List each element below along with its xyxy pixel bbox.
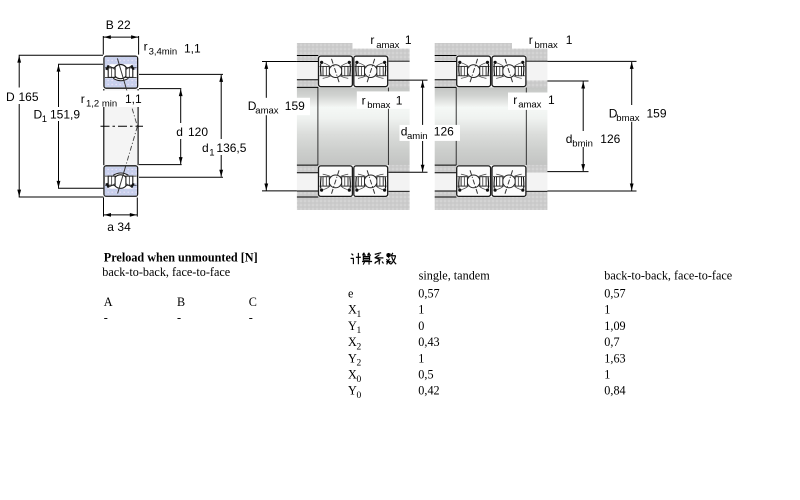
svg-text:A: A <box>104 295 113 309</box>
svg-text:r: r <box>513 93 517 107</box>
svg-text:1: 1 <box>396 93 403 107</box>
svg-text:1,1: 1,1 <box>125 92 142 106</box>
svg-text:e: e <box>348 287 353 301</box>
svg-text:amin: amin <box>407 131 428 142</box>
svg-text:B: B <box>177 295 185 309</box>
svg-text:126: 126 <box>434 124 454 138</box>
svg-text:r: r <box>81 92 85 106</box>
svg-text:3,4min: 3,4min <box>149 47 178 58</box>
svg-text:r: r <box>144 40 148 54</box>
svg-text:1: 1 <box>209 147 214 158</box>
svg-text:r: r <box>362 93 366 107</box>
svg-text:0,42: 0,42 <box>418 384 439 398</box>
svg-text:d: d <box>176 125 183 139</box>
svg-text:-: - <box>249 310 253 324</box>
svg-text:1,09: 1,09 <box>604 319 625 333</box>
svg-text:back-to-back, face-to-face: back-to-back, face-to-face <box>102 265 230 279</box>
svg-text:1: 1 <box>357 310 362 320</box>
svg-text:1,63: 1,63 <box>604 351 625 365</box>
svg-text:bmax: bmax <box>616 113 639 124</box>
svg-text:single, tandem: single, tandem <box>419 269 491 283</box>
svg-text:2: 2 <box>357 342 362 352</box>
svg-text:D: D <box>6 90 15 104</box>
svg-text:136,5: 136,5 <box>216 141 246 155</box>
svg-text:1: 1 <box>418 303 424 317</box>
svg-text:1: 1 <box>418 351 424 365</box>
svg-text:bmax: bmax <box>367 100 390 111</box>
svg-text:0,57: 0,57 <box>418 287 439 301</box>
svg-text:0,43: 0,43 <box>418 335 439 349</box>
svg-text:back-to-back, face-to-face: back-to-back, face-to-face <box>604 269 732 283</box>
svg-text:amax: amax <box>376 40 399 51</box>
svg-text:1: 1 <box>566 33 573 47</box>
svg-text:Preload when unmounted [N]: Preload when unmounted [N] <box>104 250 258 264</box>
svg-text:-: - <box>177 310 181 324</box>
svg-text:amax: amax <box>518 99 541 110</box>
svg-text:-: - <box>104 310 108 324</box>
svg-text:1: 1 <box>548 93 555 107</box>
svg-text:22: 22 <box>117 18 131 32</box>
svg-text:B: B <box>106 18 114 32</box>
svg-text:1: 1 <box>357 326 362 336</box>
svg-text:r: r <box>529 33 533 47</box>
svg-text:1: 1 <box>405 33 412 47</box>
svg-text:165: 165 <box>19 90 39 104</box>
svg-text:126: 126 <box>600 132 620 146</box>
svg-text:0: 0 <box>357 375 362 385</box>
svg-text:amax: amax <box>255 105 278 116</box>
svg-text:2: 2 <box>357 359 362 369</box>
svg-text:a: a <box>107 220 114 234</box>
svg-text:0,84: 0,84 <box>604 384 625 398</box>
svg-text:bmin: bmin <box>572 139 593 150</box>
svg-text:d: d <box>202 141 209 155</box>
svg-text:120: 120 <box>188 125 208 139</box>
svg-text:159: 159 <box>285 99 305 113</box>
svg-text:1: 1 <box>42 114 47 125</box>
svg-text:0,7: 0,7 <box>604 335 619 349</box>
svg-text:bmax: bmax <box>535 40 558 51</box>
svg-text:1,2 min: 1,2 min <box>86 98 117 109</box>
svg-text:0,5: 0,5 <box>418 368 433 382</box>
svg-text:0: 0 <box>357 391 362 401</box>
svg-text:159: 159 <box>647 107 667 121</box>
svg-text:34: 34 <box>117 220 131 234</box>
svg-text:0,57: 0,57 <box>604 287 625 301</box>
svg-text:r: r <box>370 33 374 47</box>
svg-text:0: 0 <box>418 319 424 333</box>
svg-text:1: 1 <box>604 368 610 382</box>
svg-text:1,1: 1,1 <box>184 42 201 56</box>
svg-text:C: C <box>249 295 257 309</box>
svg-text:151,9: 151,9 <box>50 108 80 122</box>
svg-text:1: 1 <box>604 303 610 317</box>
